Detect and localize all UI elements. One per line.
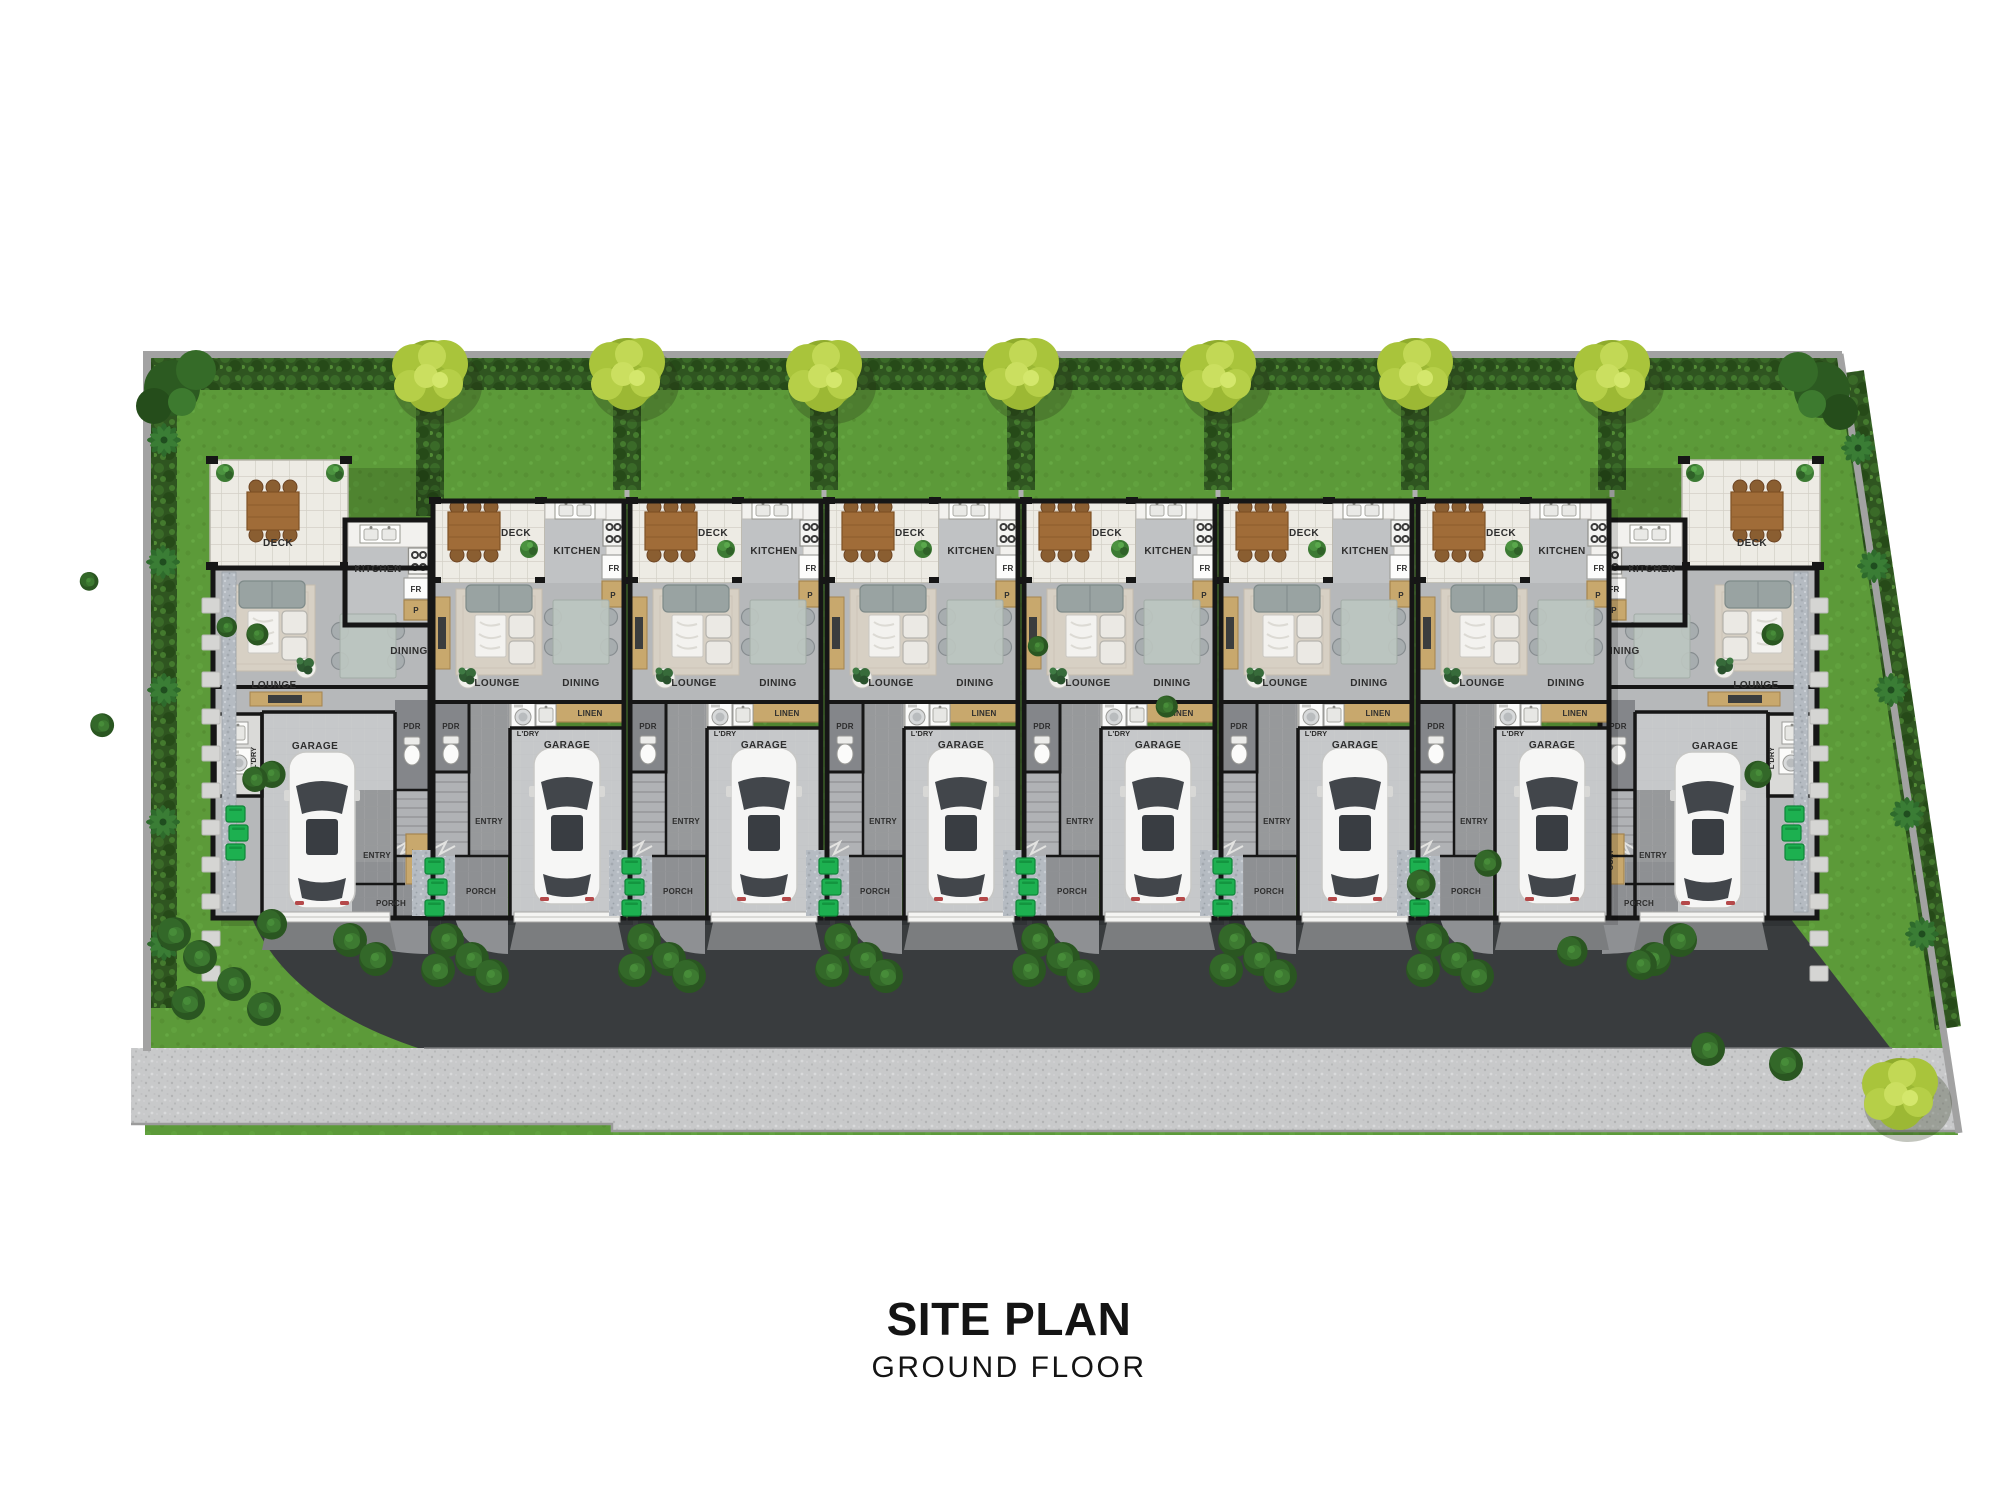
- room-label-laundry: L'DRY: [249, 747, 258, 769]
- room-label-lounge: LOUNGE: [1459, 678, 1504, 689]
- room-label-kitchen: KITCHEN: [750, 546, 797, 557]
- room-label-garage: GARAGE: [1692, 741, 1738, 752]
- room-label-pantry: P: [1004, 591, 1010, 600]
- room-label-garage: GARAGE: [544, 740, 590, 751]
- room-label-lounge: LOUNGE: [868, 678, 913, 689]
- room-label-pantry: P: [610, 591, 616, 600]
- room-label-dining: DINING: [562, 678, 599, 689]
- room-label-entry: ENTRY: [1460, 817, 1488, 826]
- room-label-kitchen: KITCHEN: [1628, 564, 1675, 575]
- room-label-porch: PORCH: [1254, 887, 1284, 896]
- room-label-dining: DINING: [390, 646, 427, 657]
- room-label-deck: DECK: [1486, 528, 1516, 539]
- room-label-fridge: FR: [1396, 564, 1407, 573]
- room-label-garage: GARAGE: [741, 740, 787, 751]
- room-label-deck: DECK: [698, 528, 728, 539]
- room-label-garage: GARAGE: [292, 741, 338, 752]
- room-label-linen: LINEN: [1563, 709, 1588, 718]
- room-label-powder: PDR: [639, 722, 657, 731]
- room-label-garage: GARAGE: [1529, 740, 1575, 751]
- room-label-laundry: L'DRY: [1305, 729, 1327, 738]
- unit-5: DECK KITCHEN FR P LOUNGE DINING LINEN L'…: [1003, 497, 1224, 993]
- room-label-deck: DECK: [501, 528, 531, 539]
- unit-6: DECK KITCHEN FR P LOUNGE DINING LINEN L'…: [1200, 497, 1421, 993]
- unit-3: DECK KITCHEN FR P LOUNGE DINING LINEN L'…: [609, 497, 830, 993]
- room-label-porch: PORCH: [376, 899, 406, 908]
- room-label-powder: PDR: [836, 722, 854, 731]
- room-label-fridge: FR: [1199, 564, 1210, 573]
- unit-8: DECK KITCHEN FR P LOUNGE DINING L'DRY PD…: [1590, 456, 1828, 981]
- room-label-pantry: P: [807, 591, 813, 600]
- room-label-lounge: LOUNGE: [1262, 678, 1307, 689]
- room-label-entry: ENTRY: [363, 851, 391, 860]
- room-label-pantry: P: [1595, 591, 1601, 600]
- unit-1: DECK KITCHEN FR P LOUNGE DINING L'DRY PD…: [202, 456, 440, 981]
- room-label-laundry: L'DRY: [1108, 729, 1130, 738]
- room-label-entry: ENTRY: [475, 817, 503, 826]
- room-label-lounge: LOUNGE: [671, 678, 716, 689]
- room-label-porch: PORCH: [663, 887, 693, 896]
- unit-7: DECK KITCHEN FR P LOUNGE DINING LINEN L'…: [1397, 497, 1618, 993]
- room-label-deck: DECK: [1092, 528, 1122, 539]
- room-label-dining: DINING: [956, 678, 993, 689]
- room-label-lounge: LOUNGE: [474, 678, 519, 689]
- room-label-laundry: L'DRY: [911, 729, 933, 738]
- title-block: SITE PLAN GROUND FLOOR: [871, 1293, 1146, 1384]
- room-label-laundry: L'DRY: [714, 729, 736, 738]
- page-title: SITE PLAN: [887, 1293, 1132, 1345]
- room-label-lounge: LOUNGE: [251, 680, 296, 691]
- room-label-fridge: FR: [608, 564, 619, 573]
- room-label-pantry: P: [1398, 591, 1404, 600]
- room-label-entry: ENTRY: [672, 817, 700, 826]
- room-label-laundry: L'DRY: [517, 729, 539, 738]
- room-label-powder: PDR: [1230, 722, 1248, 731]
- room-label-fridge: FR: [805, 564, 816, 573]
- site-plan-canvas: DECK KITCHEN FR P LOUNGE DINING L'DRY PD…: [0, 0, 2000, 1500]
- room-label-linen: LINEN: [972, 709, 997, 718]
- room-label-deck: DECK: [1737, 538, 1767, 549]
- room-label-kitchen: KITCHEN: [1144, 546, 1191, 557]
- room-label-kitchen: KITCHEN: [1341, 546, 1388, 557]
- room-label-fridge: FR: [1002, 564, 1013, 573]
- unit-4: DECK KITCHEN FR P LOUNGE DINING LINEN L'…: [806, 497, 1027, 993]
- room-label-deck: DECK: [1289, 528, 1319, 539]
- room-label-powder: PDR: [1033, 722, 1051, 731]
- room-label-kitchen: KITCHEN: [1538, 546, 1585, 557]
- room-label-entry: ENTRY: [869, 817, 897, 826]
- room-label-linen: LINEN: [775, 709, 800, 718]
- room-label-powder: PDR: [403, 722, 421, 731]
- room-label-porch: PORCH: [1057, 887, 1087, 896]
- room-label-kitchen: KITCHEN: [354, 564, 401, 575]
- footpath: [131, 1048, 1957, 1131]
- room-label-kitchen: KITCHEN: [553, 546, 600, 557]
- room-label-fridge: FR: [410, 585, 421, 594]
- units-layer: DECK KITCHEN FR P LOUNGE DINING L'DRY PD…: [202, 456, 1828, 993]
- room-label-dining: DINING: [1153, 678, 1190, 689]
- room-label-porch: PORCH: [1624, 899, 1654, 908]
- room-label-deck: DECK: [263, 538, 293, 549]
- room-label-pantry: P: [413, 606, 419, 615]
- site-plan-page: DECK KITCHEN FR P LOUNGE DINING L'DRY PD…: [0, 0, 2000, 1500]
- room-label-entry: ENTRY: [1066, 817, 1094, 826]
- unit-2: DECK KITCHEN FR P LOUNGE DINING LINEN L'…: [412, 497, 633, 993]
- room-label-linen: LINEN: [578, 709, 603, 718]
- room-label-porch: PORCH: [466, 887, 496, 896]
- room-label-linen: LINEN: [1366, 709, 1391, 718]
- room-label-lounge: LOUNGE: [1733, 680, 1778, 691]
- room-label-dining: DINING: [1350, 678, 1387, 689]
- room-label-powder: PDR: [442, 722, 460, 731]
- room-label-dining: DINING: [759, 678, 796, 689]
- page-subtitle: GROUND FLOOR: [871, 1351, 1146, 1384]
- room-label-entry: ENTRY: [1263, 817, 1291, 826]
- room-label-laundry: L'DRY: [1767, 747, 1776, 769]
- room-label-powder: PDR: [1427, 722, 1445, 731]
- room-label-deck: DECK: [895, 528, 925, 539]
- room-label-fridge: FR: [1593, 564, 1604, 573]
- room-label-lounge: LOUNGE: [1065, 678, 1110, 689]
- room-label-entry: ENTRY: [1639, 851, 1667, 860]
- room-label-laundry: L'DRY: [1502, 729, 1524, 738]
- room-label-garage: GARAGE: [1332, 740, 1378, 751]
- room-label-porch: PORCH: [860, 887, 890, 896]
- room-label-kitchen: KITCHEN: [947, 546, 994, 557]
- room-label-garage: GARAGE: [1135, 740, 1181, 751]
- room-label-dining: DINING: [1547, 678, 1584, 689]
- room-label-porch: PORCH: [1451, 887, 1481, 896]
- room-label-pantry: P: [1201, 591, 1207, 600]
- room-label-garage: GARAGE: [938, 740, 984, 751]
